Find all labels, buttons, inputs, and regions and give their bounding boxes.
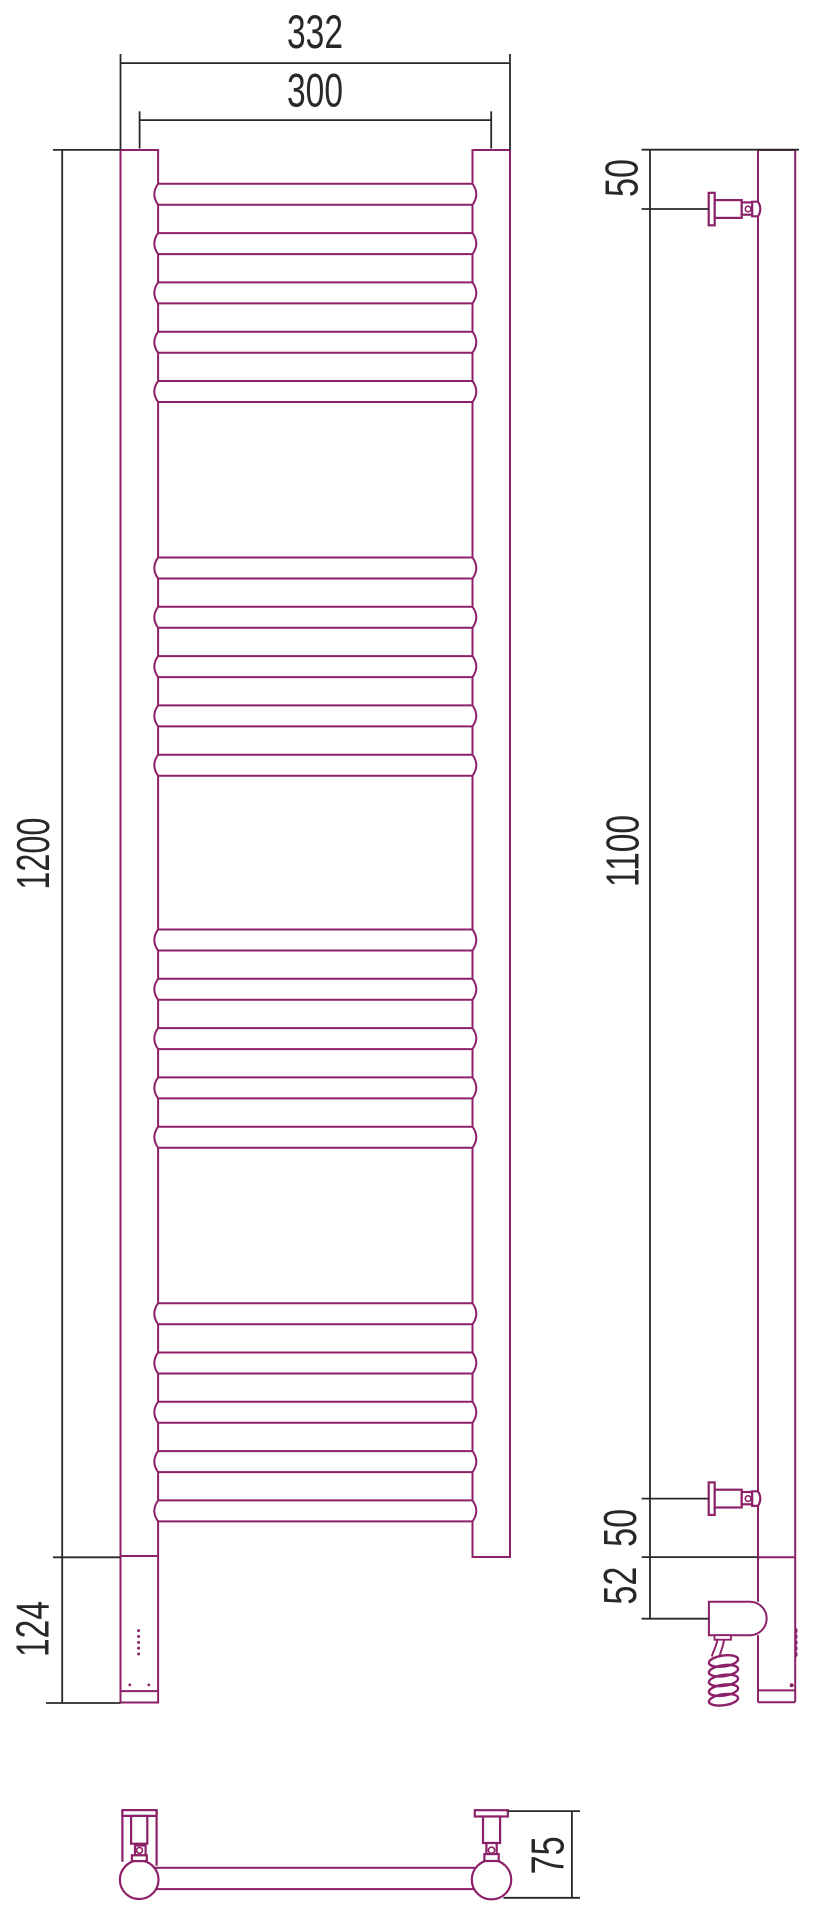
svg-text:75: 75 xyxy=(522,1836,574,1874)
svg-text:52: 52 xyxy=(594,1567,646,1605)
svg-text:50: 50 xyxy=(596,159,648,197)
svg-text:50: 50 xyxy=(594,1509,646,1547)
svg-text:124: 124 xyxy=(6,1601,58,1657)
svg-text:332: 332 xyxy=(287,5,343,58)
svg-text:1200: 1200 xyxy=(7,818,59,890)
svg-text:300: 300 xyxy=(287,64,343,117)
svg-text:1100: 1100 xyxy=(597,815,649,887)
